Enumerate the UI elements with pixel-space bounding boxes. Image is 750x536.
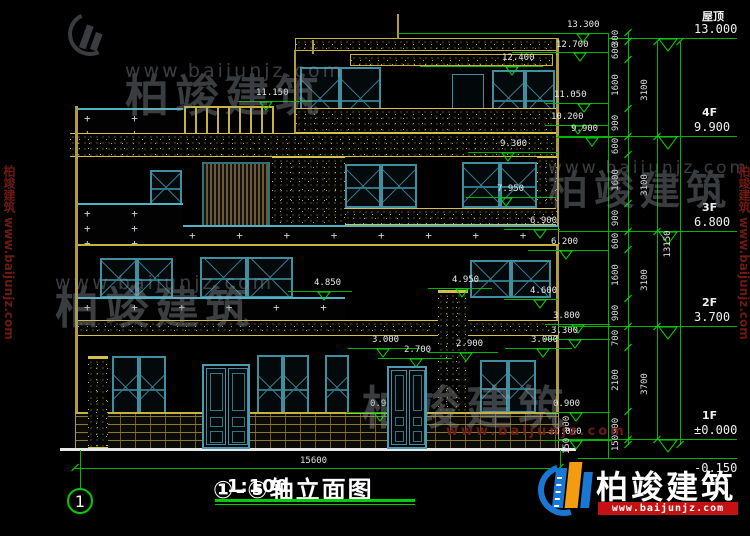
elevation-triangle-icon (317, 291, 331, 301)
elevation-label: 0.900 (553, 399, 580, 409)
elevation-triangle-icon (658, 439, 678, 453)
elevation-triangle-icon (373, 412, 387, 422)
annotation-layer: 13.30012.70012.40011.15011.05010.2009.90… (0, 0, 750, 536)
elevation-label: 9.300 (500, 139, 527, 149)
dim-label: 600 (611, 43, 621, 59)
company-logo: 柏竣建筑 www.baijunjz.com (538, 458, 748, 528)
floor-level-line (558, 231, 737, 232)
logo-website: www.baijunjz.com (598, 502, 738, 515)
entry-door-left (202, 364, 250, 449)
elevation-triangle-icon (499, 197, 513, 207)
elevation-triangle-icon (533, 229, 547, 239)
floor-elevation: 3.700 (694, 310, 730, 324)
dim-label: 3100 (640, 269, 650, 291)
elevation-label: 9.900 (571, 124, 598, 134)
dim-label: 2100 (611, 369, 621, 391)
elevation-leader (504, 229, 560, 230)
title-underline-thin (215, 504, 415, 505)
leader-column (608, 33, 609, 458)
elevation-label: 2.700 (404, 345, 431, 355)
cad-elevation-drawing: + + + + + + + + + + + + + + + + + + + + … (0, 0, 750, 536)
floor-elevation: 13.000 (694, 22, 737, 36)
floor-elevation: 9.900 (694, 120, 730, 134)
dim-label: 1600 (611, 169, 621, 191)
elevation-label: 3.800 (553, 311, 580, 321)
elevation-triangle-icon (259, 101, 273, 111)
floor-name: 2F (702, 296, 717, 309)
elevation-leader (556, 137, 612, 138)
elevation-label: 2.900 (456, 339, 483, 349)
entry-door-right (387, 366, 427, 449)
elevation-label: 4.850 (314, 278, 341, 288)
elevation-label: 11.050 (554, 90, 587, 100)
elevation-triangle-icon (658, 38, 678, 52)
floor-name: 1F (702, 409, 717, 422)
bottom-dim-line (75, 468, 561, 469)
dim-label: 900 (611, 418, 621, 434)
floor-name: 4F (702, 106, 717, 119)
elevation-triangle-icon (658, 326, 678, 340)
floor-elevation: 6.800 (694, 215, 730, 229)
elevation-triangle-icon (559, 250, 573, 260)
elevation-label: 4.950 (452, 275, 479, 285)
elevation-triangle-icon (585, 137, 599, 147)
elevation-triangle-icon (501, 152, 515, 162)
dim-label: 1600 (611, 74, 621, 96)
elevation-triangle-icon (533, 299, 547, 309)
dim-label: 900 (611, 210, 621, 226)
elevation-label: 6.900 (530, 216, 557, 226)
elevation-triangle-icon (459, 352, 473, 362)
dim-label: 3100 (640, 174, 650, 196)
elevation-triangle-icon (573, 52, 587, 62)
axis-bubble: 1 (67, 488, 93, 514)
dim-label: 150 (611, 434, 621, 450)
floor-elevation: ±0.000 (694, 423, 737, 437)
dim-chain-line (657, 42, 658, 440)
elevation-label: 10.200 (551, 112, 584, 122)
elevation-label: 13.300 (567, 20, 600, 30)
floor-level-line (558, 136, 737, 137)
floor-level-line (558, 439, 737, 440)
elevation-triangle-icon (505, 66, 519, 76)
elevation-leader (420, 66, 543, 67)
floor-name: 3F (702, 201, 717, 214)
dim-label: 1600 (611, 264, 621, 286)
elevation-label: 7.950 (497, 184, 524, 194)
elevation-label: 12.700 (556, 40, 589, 50)
elevation-triangle-icon (536, 348, 550, 358)
drawing-title: ①-⑤轴立面图1:100 (213, 470, 289, 498)
dim-label: 900 (562, 416, 572, 432)
dim-label: 150 (562, 438, 572, 454)
dim-label: 900 (611, 305, 621, 321)
dim-chain-line (628, 33, 629, 445)
floor-level-line (558, 326, 737, 327)
elevation-label: 3.000 (372, 335, 399, 345)
elevation-triangle-icon (658, 136, 678, 150)
dim-label: 13150 (663, 230, 673, 257)
elevation-leader (504, 299, 558, 300)
dim-label: 600 (611, 233, 621, 249)
elevation-leader (238, 101, 312, 102)
elevation-label: 4.600 (530, 286, 557, 296)
bottom-dim-label: 15600 (300, 456, 327, 466)
dim-label: 700 (611, 329, 621, 345)
axis-line (80, 450, 81, 488)
title-underline (215, 499, 415, 502)
dim-chain-line (680, 42, 681, 445)
elevation-label: 11.150 (256, 88, 289, 98)
elevation-triangle-icon (455, 288, 469, 298)
dim-label: 900 (611, 115, 621, 131)
elevation-label: 6.200 (551, 237, 578, 247)
elevation-triangle-icon (376, 348, 390, 358)
dim-label: 3100 (640, 79, 650, 101)
elevation-label: 12.400 (502, 53, 535, 63)
elevation-label: 3.000 (531, 335, 558, 345)
dim-label: 600 (611, 138, 621, 154)
dim-label: 3700 (640, 373, 650, 395)
